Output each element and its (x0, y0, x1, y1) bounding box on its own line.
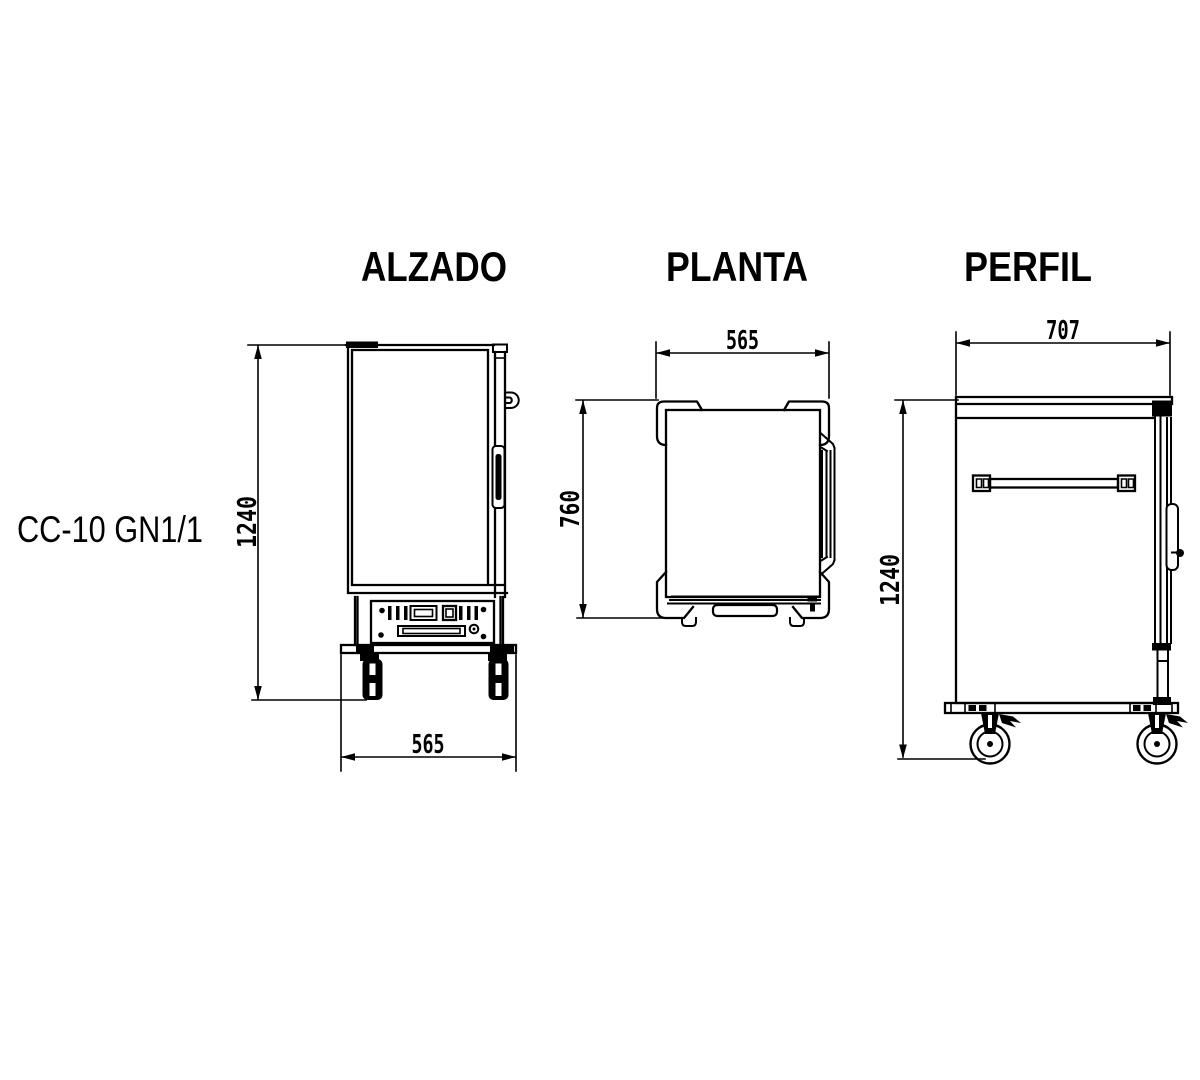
technical-drawing: CC-10 GN1/1 ALZADO (0, 0, 1200, 1080)
alzado-control-panel (355, 597, 503, 645)
panel-screw-icon (378, 632, 384, 638)
alzado-cabinet (346, 342, 519, 598)
caster-hub (1154, 741, 1160, 747)
alzado-caster-right (489, 659, 509, 700)
perfil-width-value: 707 (1046, 316, 1080, 346)
planta-body (657, 402, 835, 627)
caster-fork-slit (1155, 715, 1159, 728)
perfil-side-handle-bar (990, 479, 1118, 488)
alzado-title: ALZADO (361, 243, 507, 290)
perfil-caster-left (971, 713, 1022, 764)
base-mount-bolts (969, 705, 1152, 711)
corner-bumper-bottom-left (657, 572, 693, 618)
caster-fork-slit (988, 715, 992, 728)
planta-view: PLANTA 565 760 (556, 243, 835, 626)
planta-depth-value: 760 (556, 490, 586, 528)
perfil-hinge-post (1158, 651, 1169, 698)
caster-slit (370, 664, 376, 676)
panel-vent-slot (398, 626, 465, 636)
perfil-door-latch (1167, 504, 1179, 570)
handle-bracket-right-screws (1122, 479, 1134, 488)
alzado-body-outline (346, 345, 507, 597)
perfil-body (956, 397, 1184, 705)
planta-door-handle (713, 605, 777, 616)
corner-bumper-top-left (657, 402, 702, 446)
caster-slit (496, 683, 502, 696)
caster-brake-lever (999, 714, 1021, 728)
planta-body-outline (666, 410, 820, 597)
caster-slit (496, 664, 502, 676)
corner-bumper-top-right (784, 402, 829, 446)
caster-brake-lever (1166, 714, 1188, 728)
alzado-view: ALZADO (233, 243, 519, 771)
alzado-top-bar (346, 342, 378, 349)
panel-screw-icon (379, 608, 385, 614)
technical-drawing-page: CC-10 GN1/1 ALZADO (0, 0, 1200, 1080)
planta-depth-dimension: 760 (556, 400, 680, 618)
panel-button (443, 606, 456, 620)
panel-screw-icon (481, 607, 487, 613)
alzado-height-value: 1240 (233, 496, 263, 548)
alzado-door-handle-grip (496, 454, 502, 500)
perfil-view: PERFIL (876, 243, 1188, 764)
panel-screw-icon (481, 634, 487, 640)
alzado-height-dimension: 1240 (233, 345, 366, 700)
planta-title: PLANTA (666, 243, 808, 290)
planta-foot-tabs (682, 618, 804, 626)
perfil-caster-right (1138, 713, 1189, 764)
perfil-base (945, 703, 1178, 713)
model-label: CC-10 GN1/1 (17, 509, 203, 550)
planta-width-value: 565 (726, 326, 759, 356)
perfil-width-dimension: 707 (956, 316, 1170, 395)
latch-knob-icon (1176, 549, 1184, 557)
dimension-lines (576, 400, 680, 618)
alzado-width-value: 565 (412, 730, 445, 760)
planta-width-dimension: 565 (656, 326, 829, 398)
panel-button-inner (446, 609, 453, 617)
alzado-hook-icon (505, 393, 519, 409)
alzado-caster-left (363, 659, 383, 700)
perfil-title: PERFIL (964, 243, 1092, 290)
panel-vent-slot-inner (403, 629, 460, 634)
panel-display-inner (415, 610, 433, 617)
handle-bracket-left-screws (977, 479, 989, 488)
caster-slit (370, 683, 376, 696)
alzado-base (341, 645, 516, 661)
caster-hub (987, 741, 993, 747)
perfil-body-outline (956, 397, 1172, 703)
panel-knob-dot (473, 628, 476, 631)
planta-side-handle-bar (821, 433, 835, 575)
perfil-height-value: 1240 (876, 554, 906, 606)
